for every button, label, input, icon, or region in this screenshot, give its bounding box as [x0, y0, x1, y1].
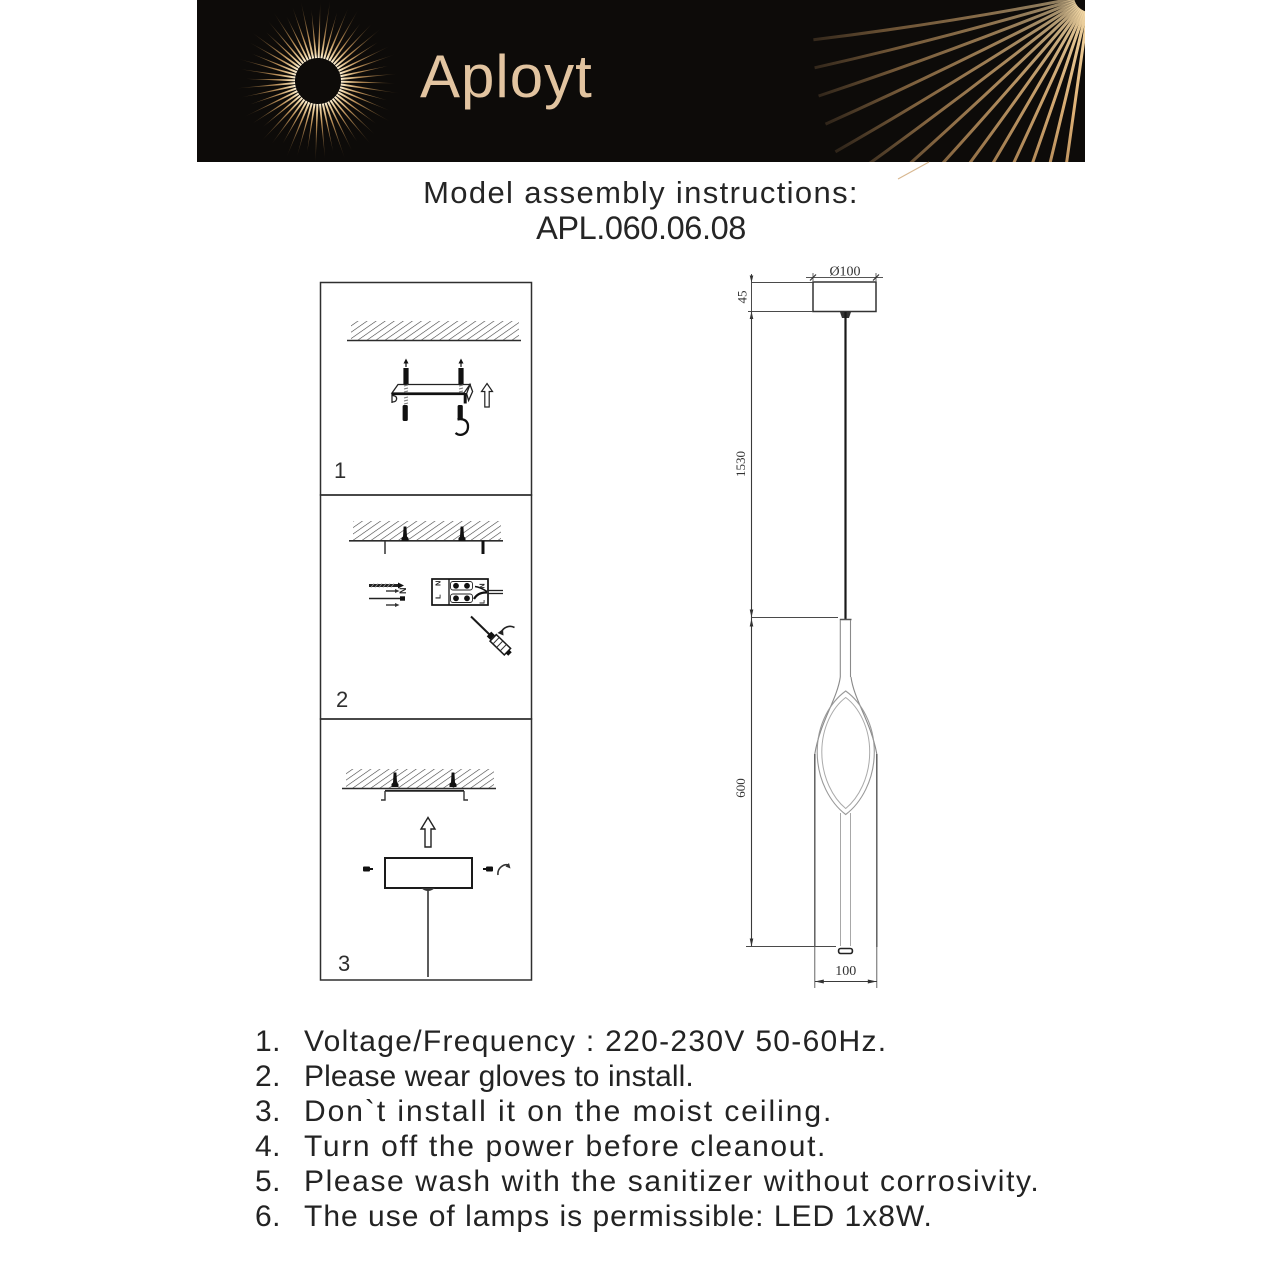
svg-text:45: 45 — [735, 291, 750, 304]
svg-text:2: 2 — [336, 687, 348, 712]
svg-text:L: L — [434, 594, 443, 599]
svg-text:3: 3 — [338, 951, 350, 976]
svg-text:1530: 1530 — [733, 451, 748, 477]
svg-text:N: N — [434, 581, 443, 586]
svg-text:Ø100: Ø100 — [829, 265, 860, 280]
svg-text:1: 1 — [334, 458, 346, 483]
svg-text:N: N — [398, 588, 408, 595]
svg-text:N: N — [480, 583, 487, 588]
svg-text:100: 100 — [835, 964, 856, 979]
svg-text:L: L — [480, 599, 487, 604]
svg-text:600: 600 — [733, 778, 748, 798]
svg-text:Aployt: Aployt — [420, 43, 593, 110]
